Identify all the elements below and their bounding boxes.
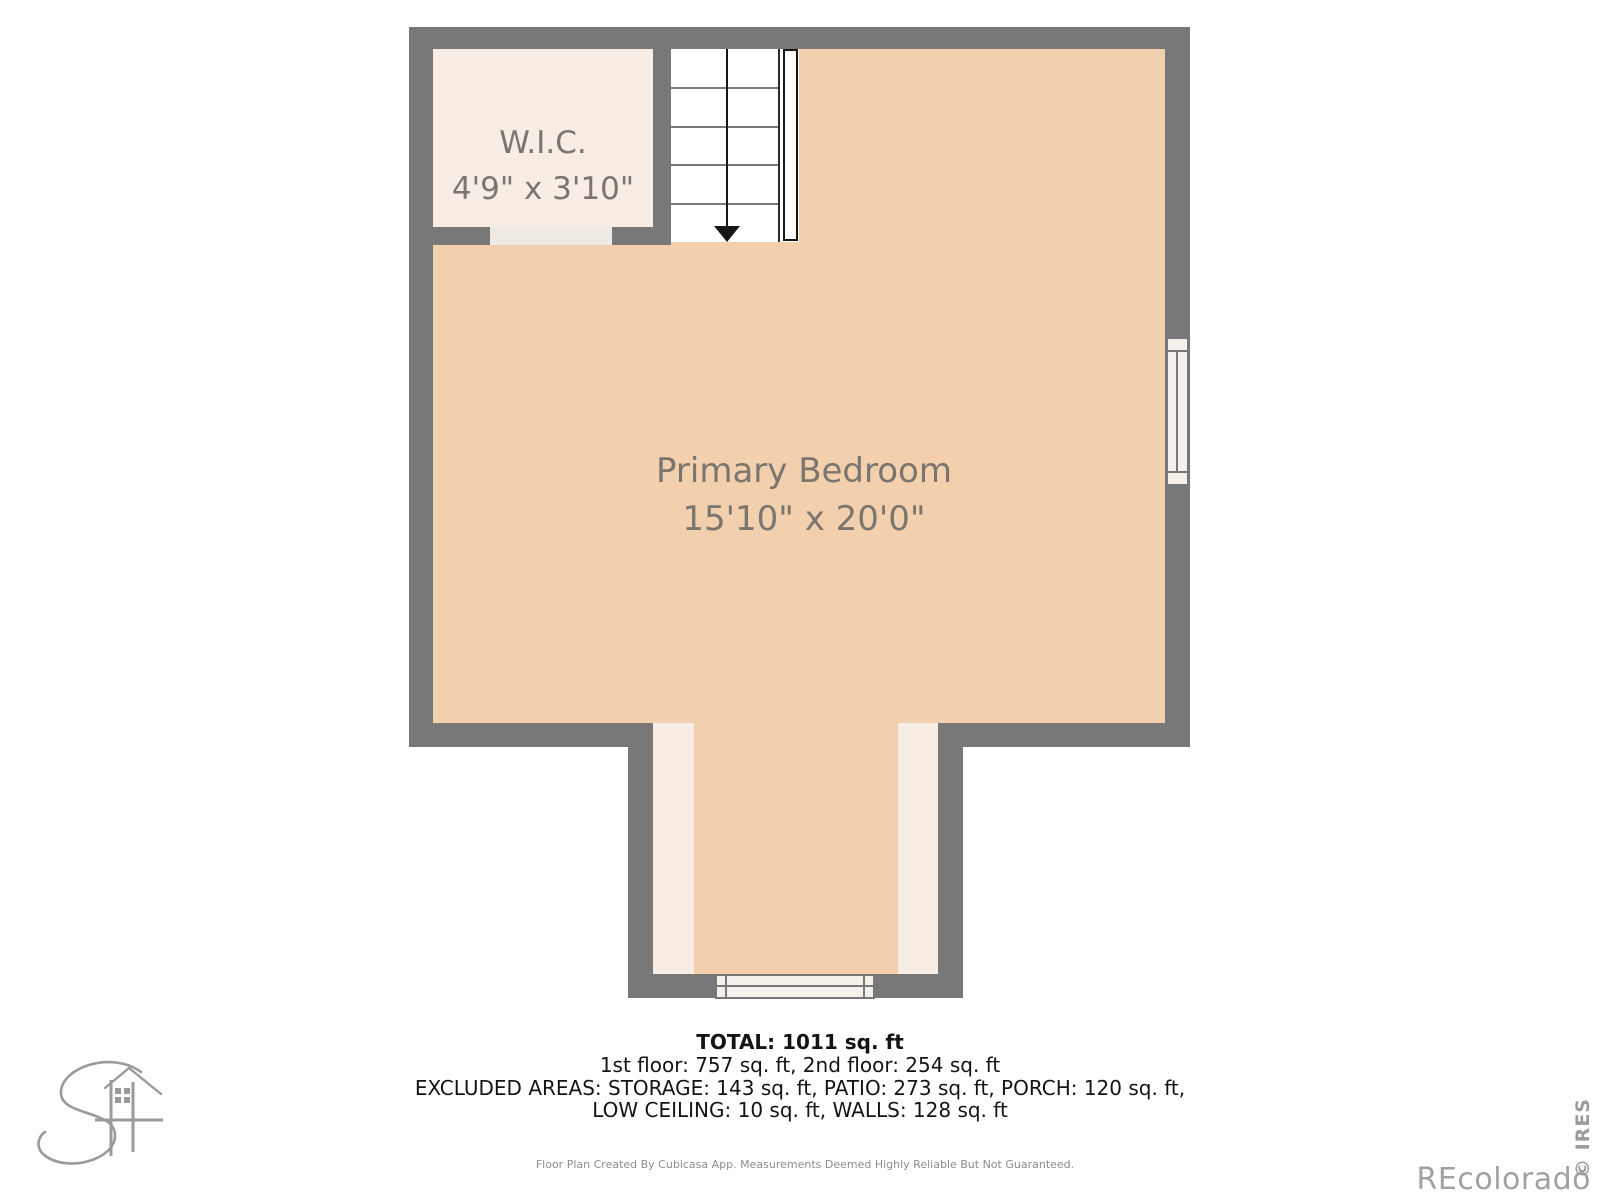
sh-house-logo-icon — [25, 1058, 175, 1177]
summary-excluded-line2: LOW CEILING: 10 sq. ft, WALLS: 128 sq. f… — [0, 1099, 1600, 1122]
window-bottom-wall — [715, 974, 875, 999]
stair-direction-line — [726, 49, 728, 226]
summary-excluded-line1: EXCLUDED AREAS: STORAGE: 143 sq. ft, PAT… — [0, 1077, 1600, 1100]
closet-strip-right — [898, 723, 938, 975]
window-glass-line — [1176, 352, 1178, 471]
closet-strip-left — [653, 723, 694, 975]
wic-door-opening — [490, 227, 612, 245]
window-frame-line — [725, 976, 727, 997]
bedroom-room-dimensions: 15'10" x 20'0" — [433, 495, 1175, 543]
stair-step-line — [671, 87, 779, 89]
stair-step-line — [671, 164, 779, 166]
stairs-down-arrow-icon — [714, 226, 740, 242]
staircase — [671, 49, 799, 242]
ires-watermark: © IRES — [1572, 1096, 1594, 1178]
stair-handrail — [783, 49, 798, 241]
window-frame-line — [863, 976, 865, 997]
disclaimer-text: Floor Plan Created By Cubicasa App. Meas… — [0, 1158, 1600, 1171]
wic-label: W.I.C. 4'9" x 3'10" — [433, 120, 653, 212]
bedroom-room-name: Primary Bedroom — [433, 447, 1175, 495]
wall-bottom-right — [938, 723, 1190, 747]
floor-plan-page: W.I.C. 4'9" x 3'10" Primary Bedroom 15'1… — [0, 0, 1600, 1200]
stair-tread-edge — [778, 49, 780, 242]
recolorado-watermark: REcolorado — [1417, 1162, 1591, 1197]
extension-wall-left — [628, 723, 653, 998]
wic-wall-right — [653, 49, 671, 245]
extension-wall-right — [938, 723, 963, 998]
extension-floor — [694, 723, 898, 975]
summary-total: TOTAL: 1011 sq. ft — [0, 1031, 1600, 1054]
wall-left — [409, 27, 433, 747]
area-summary: TOTAL: 1011 sq. ft 1st floor: 757 sq. ft… — [0, 1031, 1600, 1122]
wic-room-dimensions: 4'9" x 3'10" — [433, 166, 653, 212]
summary-floors: 1st floor: 757 sq. ft, 2nd floor: 254 sq… — [0, 1054, 1600, 1077]
wall-top — [409, 27, 1190, 49]
window-glass-line — [717, 985, 873, 987]
wic-room-name: W.I.C. — [433, 120, 653, 166]
wall-bottom-left — [409, 723, 653, 747]
stair-step-line — [671, 203, 779, 205]
bedroom-label: Primary Bedroom 15'10" x 20'0" — [433, 447, 1175, 543]
stair-step-line — [671, 126, 779, 128]
